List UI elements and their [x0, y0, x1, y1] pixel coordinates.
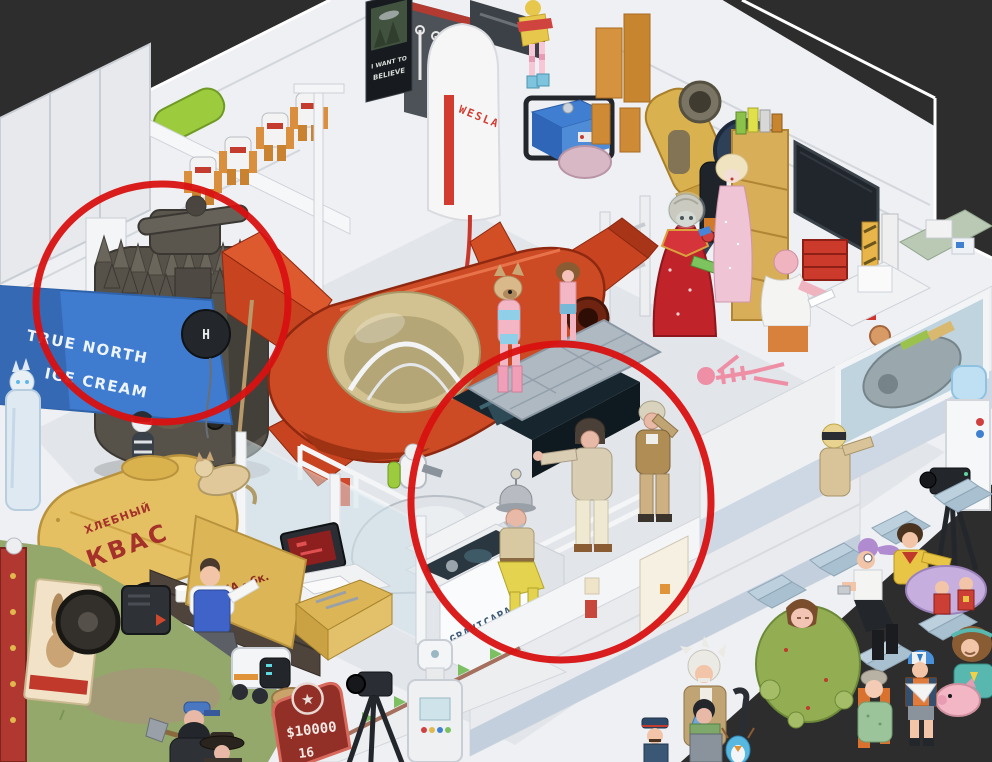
believe-poster: I WANT TO BELIEVE	[366, 0, 412, 102]
red-pillar	[0, 538, 26, 762]
robot-green-canister	[388, 462, 400, 488]
cockpit-dome	[328, 292, 480, 412]
price-sign-line2: 16	[298, 745, 316, 762]
sheriff-star-icon: ★	[300, 690, 316, 710]
spare-tire	[58, 592, 118, 652]
scene-canvas: I WANT TO BELIEVE	[0, 0, 992, 762]
generator-box	[122, 586, 170, 634]
vr-headset	[822, 432, 846, 440]
charger-cable-slot	[444, 95, 454, 205]
pixel-art-scene: I WANT TO BELIEVE	[0, 0, 992, 762]
pink-bag	[559, 146, 611, 178]
red-toolbox	[803, 240, 847, 280]
balloon-letter: H	[202, 328, 210, 343]
